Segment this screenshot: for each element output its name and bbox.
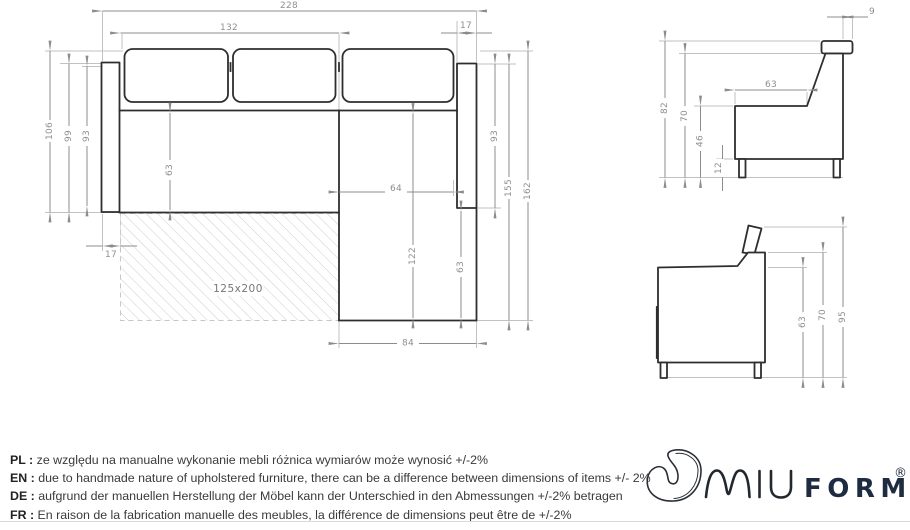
tolerance-notes: PL : ze względu na manualne wykonanie me… bbox=[10, 451, 651, 524]
note-lang: FR bbox=[10, 508, 27, 522]
bean-icon bbox=[647, 450, 701, 501]
dim-left-depth-inner: 99 bbox=[64, 130, 74, 142]
note-text: due to handmade nature of upholstered fu… bbox=[38, 471, 650, 485]
registered-mark: ® bbox=[894, 466, 907, 481]
note-separator: : bbox=[27, 489, 38, 503]
dim-total-width: 228 bbox=[280, 1, 298, 11]
note-text: En raison de la fabrication manuelle des… bbox=[38, 508, 572, 522]
side-view-backrest: 9 82 70 46 12 63 bbox=[659, 7, 875, 191]
dim-right-length-inner: 155 bbox=[504, 179, 514, 197]
side-view-armrest: 63 70 95 bbox=[657, 226, 848, 379]
dimension-sheet: 228 132 17 106 99 93 63 bbox=[0, 0, 910, 530]
dim-back-cushions-width: 132 bbox=[220, 23, 238, 33]
note-separator: : bbox=[27, 471, 38, 485]
leg bbox=[834, 159, 841, 178]
dim-side-seat-depth: 63 bbox=[765, 80, 777, 90]
note-lang: EN bbox=[10, 471, 27, 485]
logo-miu-glyphs bbox=[706, 471, 791, 498]
technical-drawing: 228 132 17 106 99 93 63 bbox=[0, 0, 910, 445]
dim-arm-body-height: 63 bbox=[798, 316, 808, 328]
headrest bbox=[822, 41, 853, 54]
side-back-outline bbox=[735, 41, 853, 178]
dim-left-depth-seat: 93 bbox=[82, 130, 92, 142]
right-armrest bbox=[457, 64, 477, 209]
note-lang: DE bbox=[10, 489, 27, 503]
plan-view: 228 132 17 106 99 93 63 bbox=[45, 1, 533, 349]
left-armrest bbox=[102, 63, 120, 213]
dim-side-back-height: 70 bbox=[680, 110, 690, 122]
tilted-headrest bbox=[743, 226, 762, 255]
bottom-divider bbox=[0, 521, 910, 522]
note-lang: PL bbox=[10, 453, 26, 467]
side-back-body bbox=[735, 54, 843, 160]
dim-left-depth-total: 106 bbox=[45, 122, 55, 140]
dim-arm-total-height: 95 bbox=[838, 311, 848, 323]
dim-seat-depth: 63 bbox=[165, 164, 175, 176]
side-arm-outline bbox=[657, 226, 765, 379]
dim-headrest-thickness: 9 bbox=[869, 7, 875, 17]
dim-right-armrest-width: 17 bbox=[460, 21, 472, 31]
note-separator: : bbox=[27, 508, 38, 522]
dim-chaise-inner-length: 122 bbox=[408, 247, 418, 265]
bed-area-hatch bbox=[121, 214, 340, 321]
dim-arm-height: 70 bbox=[818, 309, 828, 321]
note-text: aufgrund der manuellen Herstellung der M… bbox=[38, 489, 622, 503]
leg bbox=[755, 363, 762, 379]
dim-side-total-height: 82 bbox=[660, 102, 670, 114]
leg bbox=[739, 159, 746, 178]
dim-chaise-inner-width: 64 bbox=[390, 184, 402, 194]
back-cushion-3 bbox=[343, 49, 454, 102]
dim-chaise-seat-length: 63 bbox=[456, 261, 466, 273]
note-row-de: DE : aufgrund der manuellen Herstellung … bbox=[10, 487, 651, 505]
dim-seat-height: 46 bbox=[696, 135, 706, 147]
miuform-logo: FORM ® bbox=[638, 442, 910, 512]
dim-chaise-width: 84 bbox=[402, 339, 414, 349]
note-row-en: EN : due to handmade nature of upholster… bbox=[10, 469, 651, 487]
note-row-pl: PL : ze względu na manualne wykonanie me… bbox=[10, 451, 651, 469]
dim-leg-height: 12 bbox=[714, 162, 724, 174]
bed-size-label: 125x200 bbox=[213, 283, 263, 295]
note-separator: : bbox=[26, 453, 37, 467]
note-text: ze względu na manualne wykonanie mebli r… bbox=[37, 453, 488, 467]
back-cushion-2 bbox=[233, 49, 336, 102]
leg bbox=[661, 363, 668, 379]
back-cushion-1 bbox=[125, 49, 229, 102]
dim-right-length-total: 162 bbox=[523, 182, 533, 200]
side-arm-body bbox=[658, 253, 765, 363]
dim-left-armrest-width: 17 bbox=[105, 250, 117, 260]
dim-right-depth: 93 bbox=[490, 130, 500, 142]
side-arm-dimensions: 63 70 95 bbox=[798, 227, 848, 378]
